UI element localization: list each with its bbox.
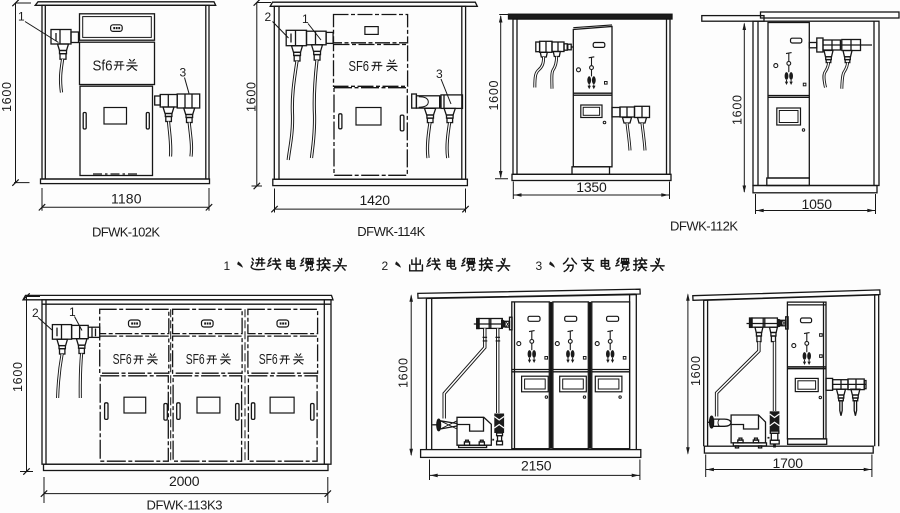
svg-text:1180: 1180 <box>111 191 142 207</box>
svg-text:1350: 1350 <box>576 179 607 195</box>
svg-text:1600: 1600 <box>11 362 25 392</box>
svg-text:Sf6: Sf6 <box>93 58 113 75</box>
svg-text:1700: 1700 <box>773 455 804 471</box>
svg-text:1050: 1050 <box>802 196 833 212</box>
svg-text:1: 1 <box>18 10 25 24</box>
svg-text:DFWK-113K3: DFWK-113K3 <box>147 498 223 513</box>
svg-text:SF6: SF6 <box>113 352 132 368</box>
svg-text:1420: 1420 <box>360 192 391 208</box>
svg-text:2: 2 <box>382 259 389 273</box>
svg-text:DFWK-114K: DFWK-114K <box>357 224 425 239</box>
svg-text:1: 1 <box>69 305 76 319</box>
svg-text:1600: 1600 <box>0 82 14 112</box>
svg-text:2: 2 <box>32 306 39 320</box>
svg-text:1: 1 <box>302 12 309 26</box>
svg-text:SF6: SF6 <box>186 352 205 368</box>
svg-text:1: 1 <box>224 259 231 273</box>
svg-text:2: 2 <box>265 10 272 24</box>
svg-text:1600: 1600 <box>245 82 259 112</box>
svg-text:1600: 1600 <box>689 356 703 386</box>
svg-text:1600: 1600 <box>397 358 411 388</box>
svg-text:3: 3 <box>436 67 443 81</box>
svg-text:DFWK-112K: DFWK-112K <box>670 219 738 234</box>
svg-text:2150: 2150 <box>521 457 552 473</box>
svg-text:SF6: SF6 <box>349 58 370 75</box>
svg-text:3: 3 <box>536 259 543 273</box>
svg-text:2000: 2000 <box>169 473 200 489</box>
svg-text:3: 3 <box>180 66 187 80</box>
svg-text:DFWK-102K: DFWK-102K <box>92 225 160 240</box>
svg-text:SF6: SF6 <box>259 352 278 368</box>
svg-text:1600: 1600 <box>731 95 745 125</box>
svg-text:1600: 1600 <box>487 80 501 110</box>
